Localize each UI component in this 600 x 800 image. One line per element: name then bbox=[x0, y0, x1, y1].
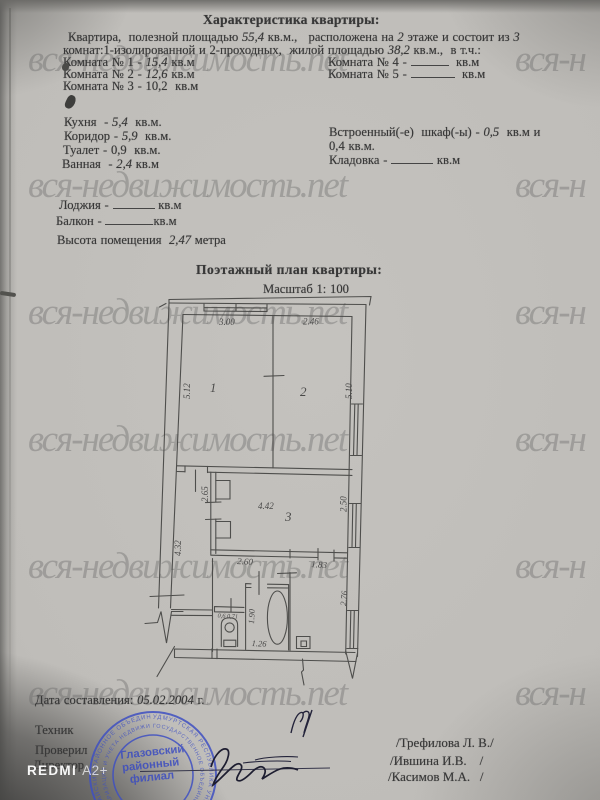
svg-text:УДМУРТСКАЯ РЕСПУБЛИКА УНИТАРНО: УДМУРТСКАЯ РЕСПУБЛИКА УНИТАРНОЕ ПРЕДПРИЯ… bbox=[0, 0, 214, 800]
svg-text:ГОСУДАРСТВЕННОЕ ОБЪЕДИНЕНИЕ ТЕ: ГОСУДАРСТВЕННОЕ ОБЪЕДИНЕНИЕ ТЕХНИЧЕСКОЙ … bbox=[0, 0, 205, 800]
